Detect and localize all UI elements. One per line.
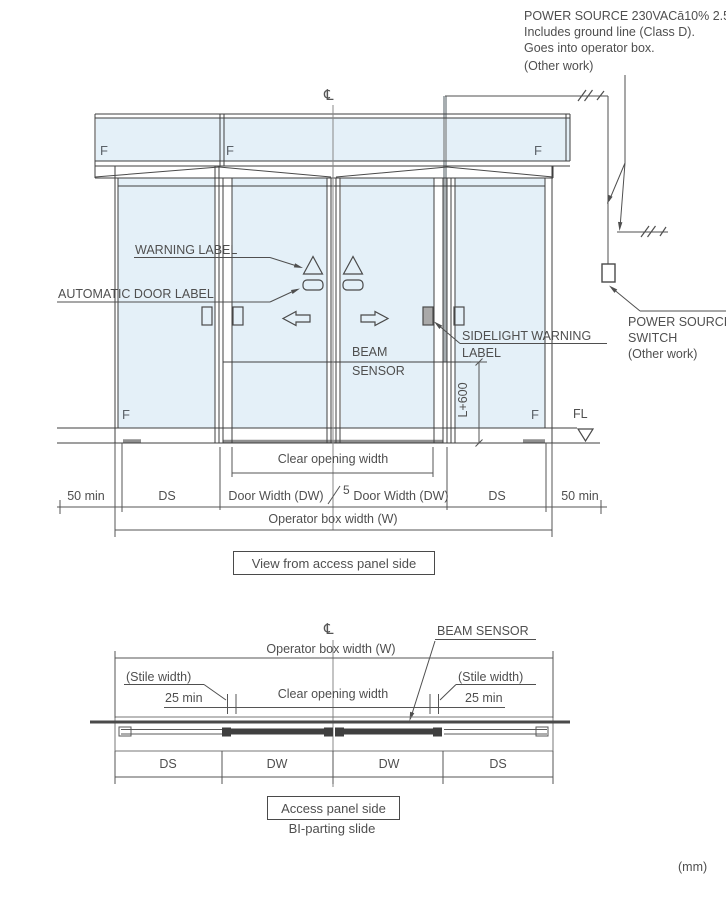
plan-operator-box-width: Operator box width (W) xyxy=(266,642,395,656)
elevation-caption-box: View from access panel side xyxy=(233,551,435,575)
automatic-door-label-text: AUTOMATIC DOOR LABEL xyxy=(58,287,214,301)
power-note-line4: (Other work) xyxy=(524,59,593,73)
center-gap-slash xyxy=(328,486,340,504)
dim-center-gap: 5 xyxy=(343,484,350,498)
plan-structure xyxy=(90,717,570,751)
sidelight-f-right: F xyxy=(531,408,539,423)
plan-subcaption: BI-parting slide xyxy=(289,822,376,837)
transom-f-mid: F xyxy=(226,144,234,159)
transom-f-right: F xyxy=(534,144,542,159)
power-switch-line2: SWITCH xyxy=(628,331,677,345)
transom-f-left: F xyxy=(100,144,108,159)
sidelight-f-left: F xyxy=(122,408,130,423)
sidelight-warning-line1: SIDELIGHT WARNING xyxy=(462,329,591,343)
dim-ds-right: DS xyxy=(488,489,505,503)
plan-25min-left: 25 min xyxy=(165,691,203,705)
power-note-line2: Includes ground line (Class D). xyxy=(524,25,695,39)
units-note: (mm) xyxy=(678,860,707,874)
dim-clear-opening: Clear opening width xyxy=(278,452,389,466)
wire-break-marks xyxy=(578,90,666,237)
floor-level-label: FL xyxy=(573,407,588,421)
plan-stile-width-right: (Stile width) xyxy=(458,670,523,684)
plan-caption-box: Access panel side xyxy=(267,796,400,820)
power-note-line1: POWER SOURCE 230VACā10% 2.5A xyxy=(524,9,726,23)
power-note-line3: Goes into operator box. xyxy=(524,41,655,55)
elevation-caption: View from access panel side xyxy=(252,556,417,571)
dim-50min-left: 50 min xyxy=(67,489,105,503)
plan-centerline-symbol: ℄ xyxy=(324,621,334,638)
automatic-door-drawing: POWER SOURCE 230VACā10% 2.5A Includes gr… xyxy=(0,0,726,903)
dim-operator-box-width: Operator box width (W) xyxy=(268,512,397,526)
beam-sensor-line2: SENSOR xyxy=(352,364,405,378)
dim-door-width-left: Door Width (DW) xyxy=(228,489,323,503)
power-switch-box xyxy=(602,264,615,282)
dim-50min-right: 50 min xyxy=(561,489,599,503)
floor-level-triangle xyxy=(578,429,593,441)
belt-drive-zigzag xyxy=(95,167,553,177)
plan-clear-opening: Clear opening width xyxy=(278,687,389,701)
beam-height-label: L+600 xyxy=(456,382,470,417)
elevation-centerline-symbol: ℄ xyxy=(324,87,334,104)
plan-dw-right: DW xyxy=(379,757,400,771)
beam-sensor-line1: BEAM xyxy=(352,345,387,359)
plan-stile-width-left: (Stile width) xyxy=(126,670,191,684)
sidelight-warning-line2: LABEL xyxy=(462,346,501,360)
dim-ds-left: DS xyxy=(158,489,175,503)
plan-ds-right: DS xyxy=(489,757,506,771)
plan-beam-sensor-label: BEAM SENSOR xyxy=(437,624,529,638)
warning-label-text: WARNING LABEL xyxy=(135,243,237,257)
sidelight-warning-sticker xyxy=(423,307,433,325)
plan-dw-left: DW xyxy=(267,757,288,771)
power-switch-line3: (Other work) xyxy=(628,347,697,361)
plan-caption: Access panel side xyxy=(281,801,386,816)
dim-door-width-right: Door Width (DW) xyxy=(353,489,448,503)
power-switch-line1: POWER SOURCE xyxy=(628,315,726,329)
plan-ds-left: DS xyxy=(159,757,176,771)
plan-25min-right: 25 min xyxy=(465,691,503,705)
